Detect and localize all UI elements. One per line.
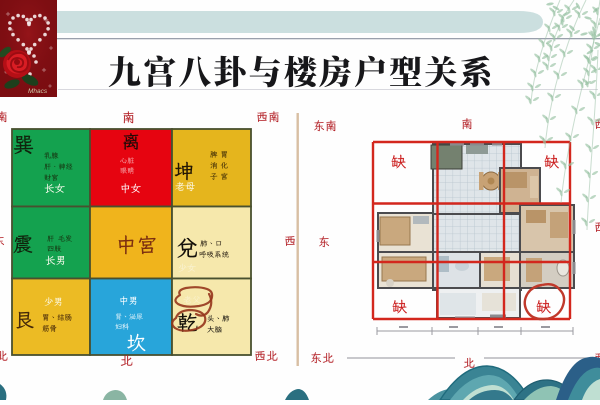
svg-text:Mhacs: Mhacs xyxy=(28,88,48,95)
